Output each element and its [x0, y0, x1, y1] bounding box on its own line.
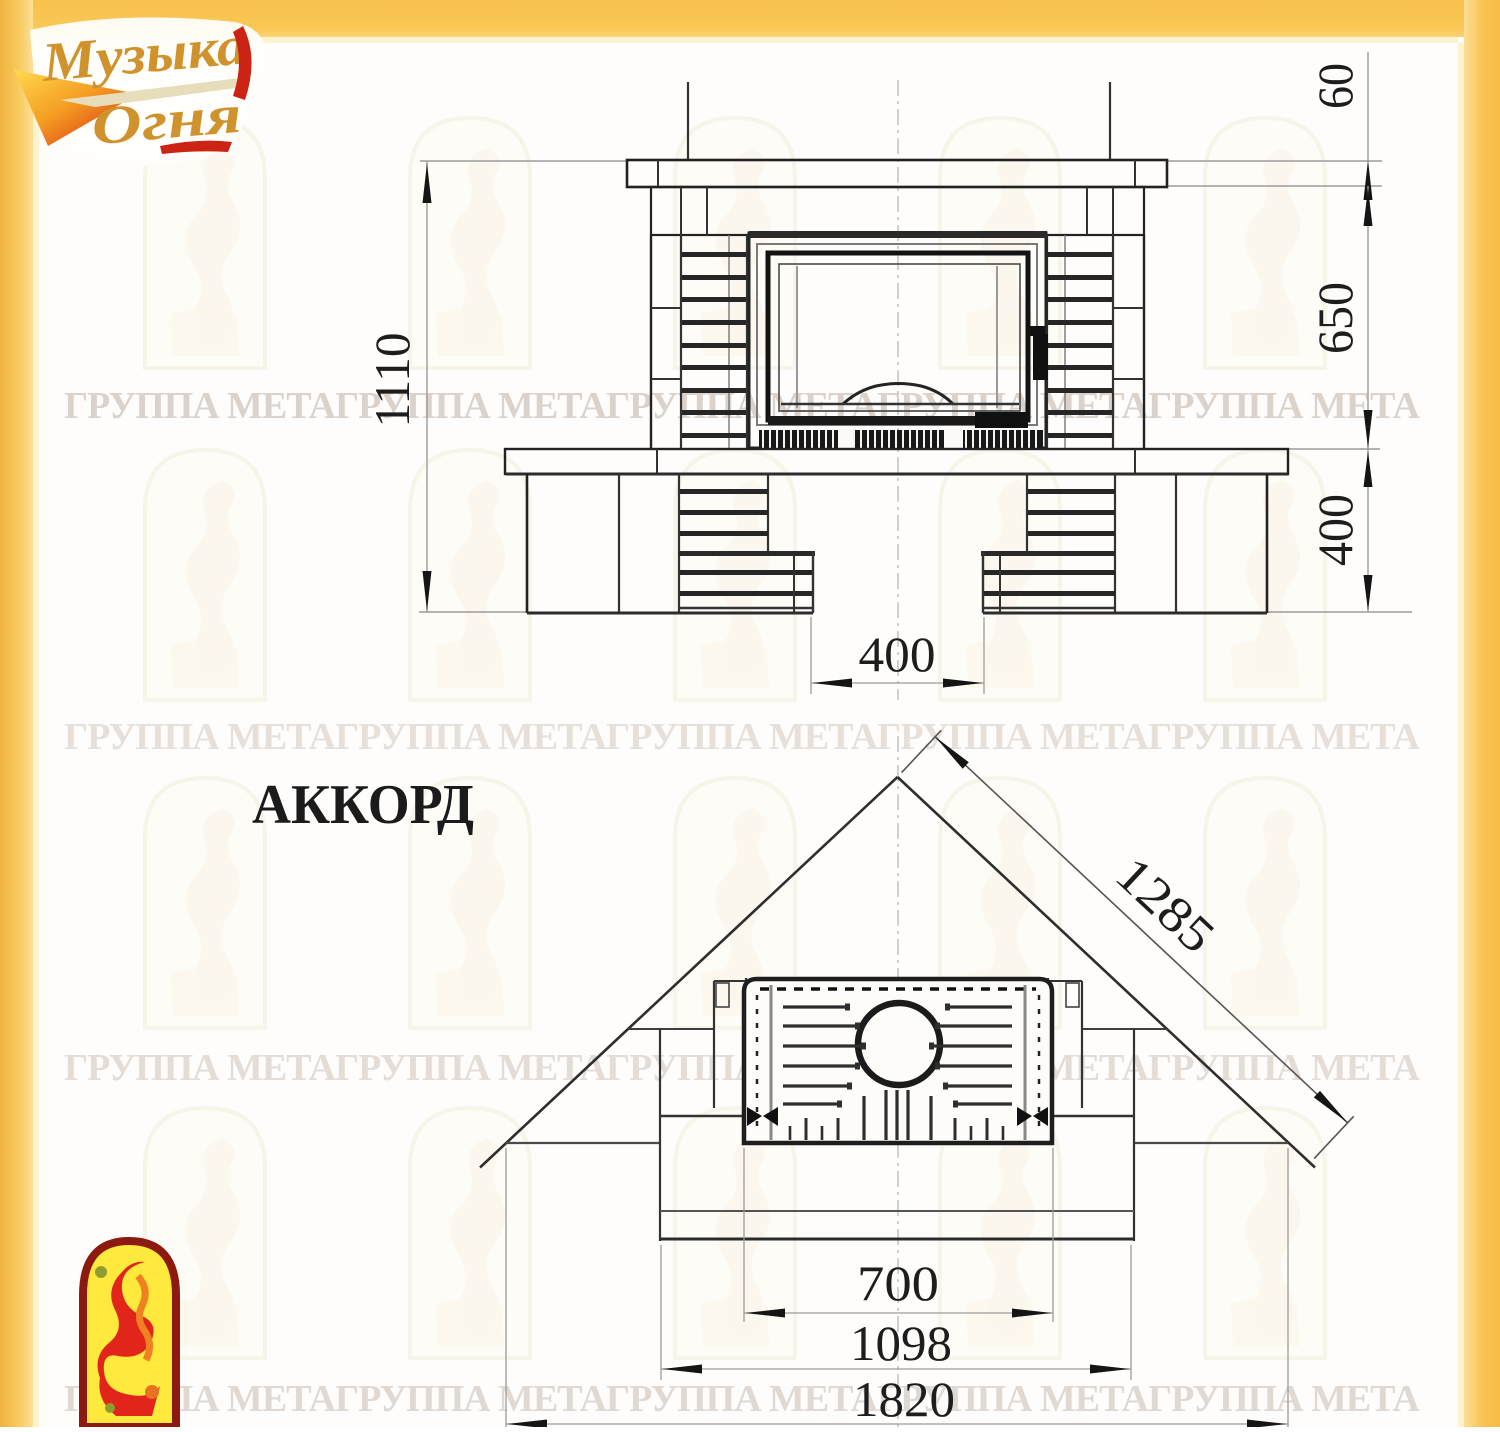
svg-text:400: 400	[1307, 494, 1363, 566]
svg-text:ГРУППА МЕТАГРУППА МЕТАГРУППА М: ГРУППА МЕТАГРУППА МЕТАГРУППА МЕТАГРУППА …	[64, 1378, 1421, 1420]
svg-text:1098: 1098	[850, 1315, 952, 1371]
svg-text:60: 60	[1307, 63, 1363, 109]
svg-text:АККОРД: АККОРД	[252, 774, 474, 836]
svg-text:700: 700	[857, 1255, 939, 1311]
svg-text:ГРУППА МЕТАГРУППА МЕТАГРУППА М: ГРУППА МЕТАГРУППА МЕТАГРУППА МЕТАГРУППА …	[64, 716, 1421, 758]
svg-text:400: 400	[859, 626, 936, 682]
svg-text:1110: 1110	[364, 333, 420, 428]
svg-text:1820: 1820	[853, 1371, 955, 1427]
svg-text:650: 650	[1307, 282, 1363, 354]
